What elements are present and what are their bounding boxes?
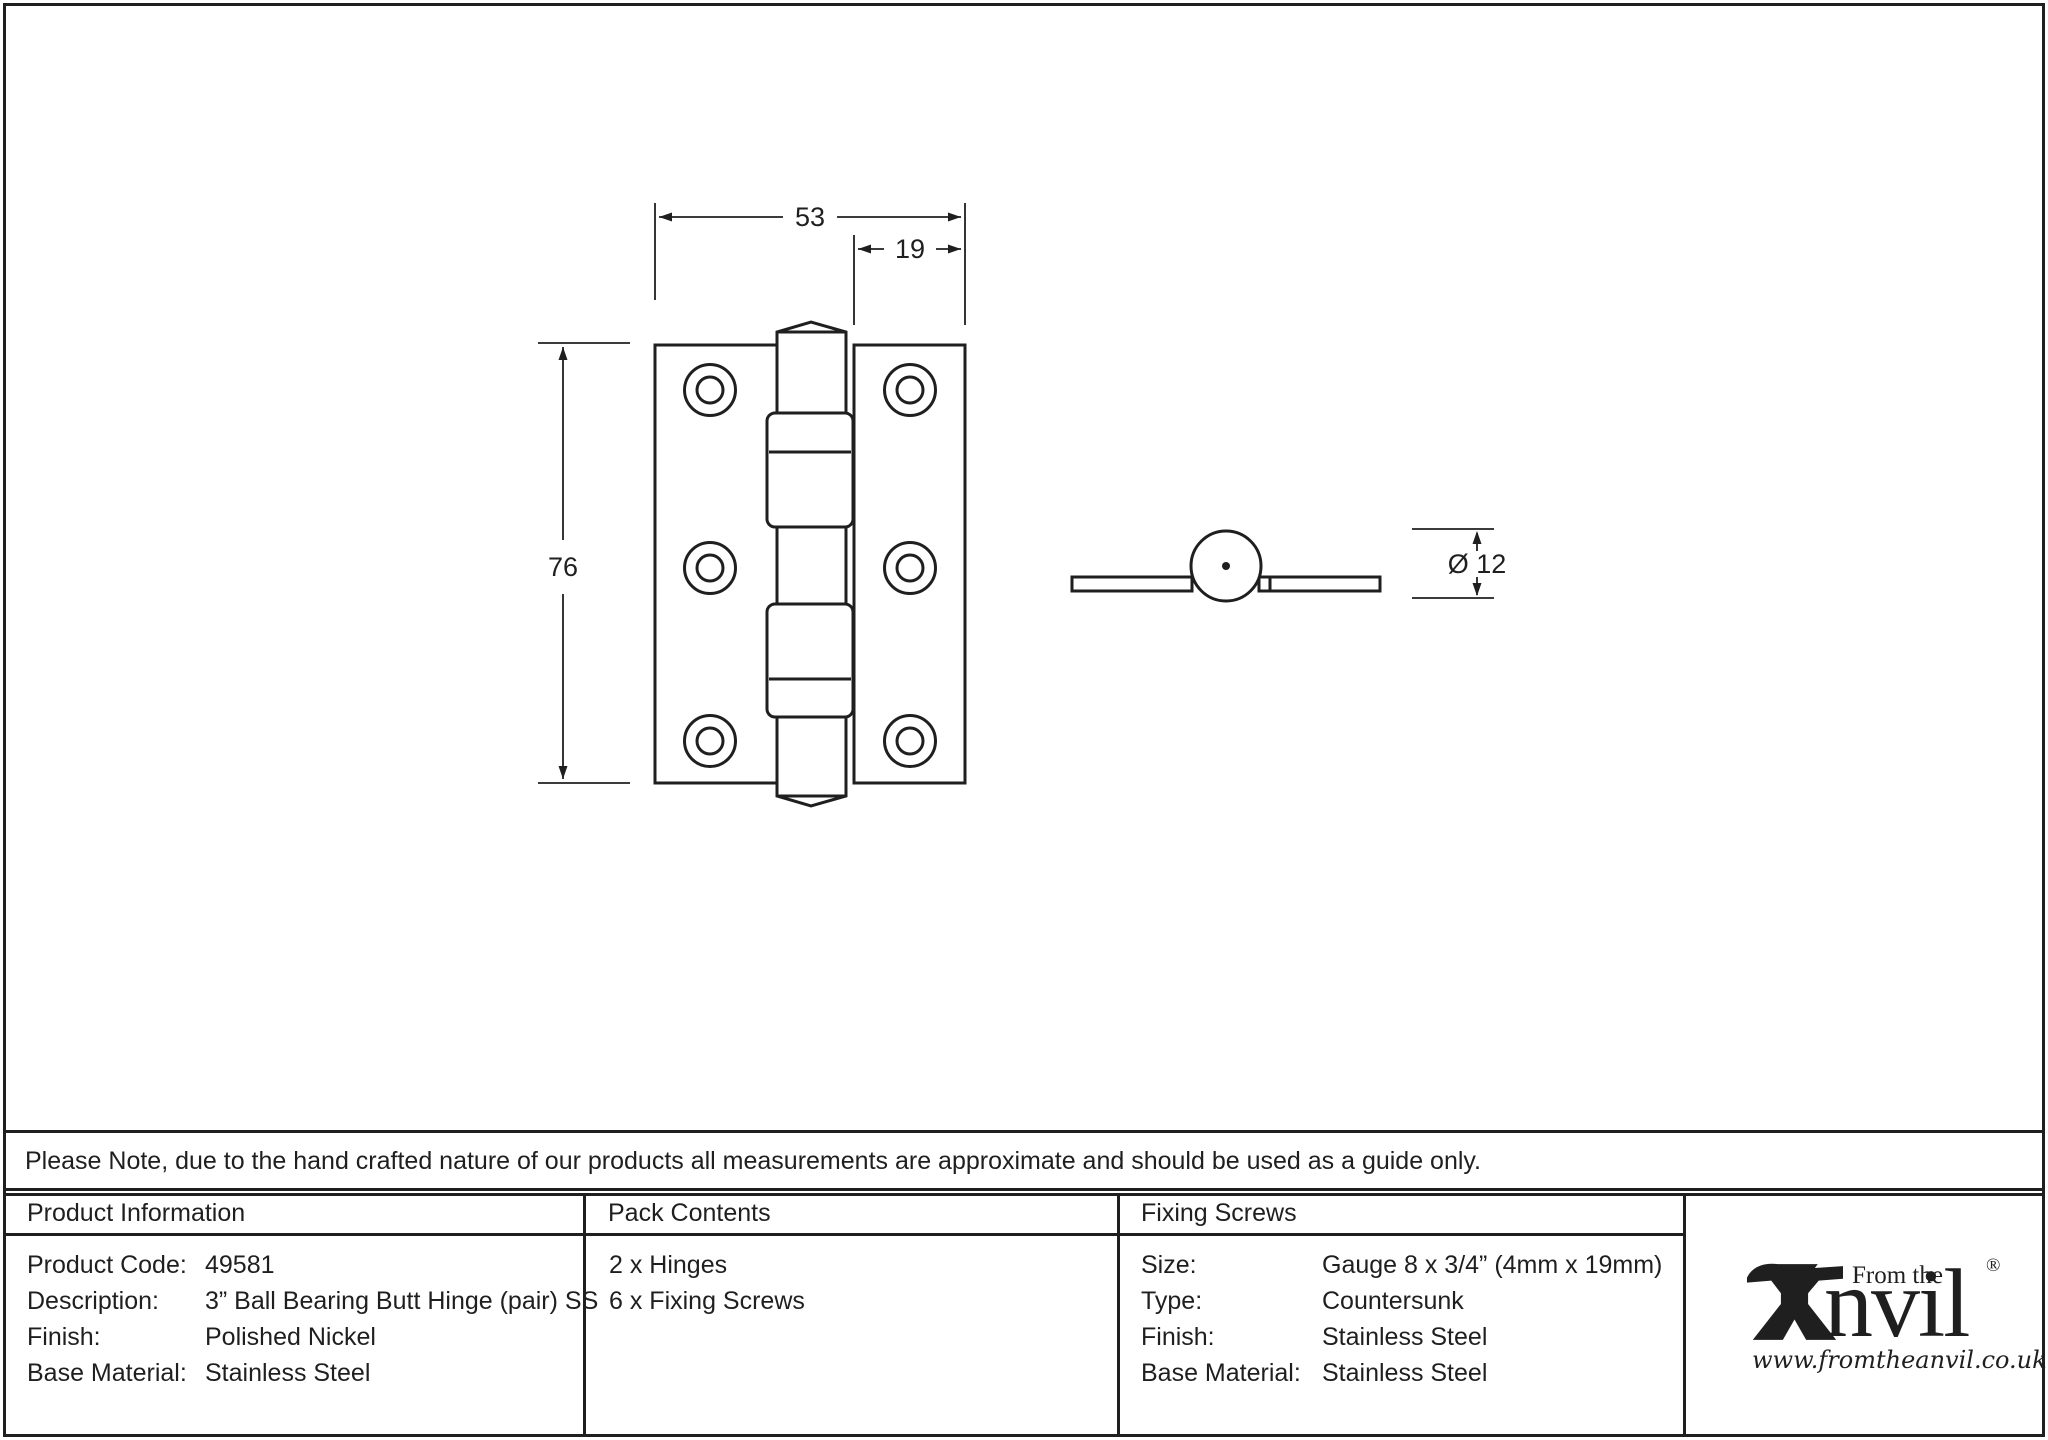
row-label: Base Material: bbox=[27, 1358, 187, 1388]
table-divider bbox=[1117, 1193, 1120, 1437]
arrow-up-icon bbox=[1473, 531, 1482, 544]
logo-url: www.fromtheanvil.co.uk bbox=[1752, 1346, 2047, 1374]
pin-center-dot bbox=[1222, 562, 1230, 570]
header-product-information: Product Information bbox=[27, 1198, 245, 1228]
arrow-right-icon bbox=[948, 245, 961, 254]
arrow-up-icon bbox=[559, 347, 568, 360]
arrow-right-icon bbox=[948, 213, 961, 222]
hinge-technical-drawing: 53 19 76 Ø 12 bbox=[0, 0, 2048, 1130]
dim-label-19: 19 bbox=[895, 234, 925, 264]
side-right-leaf bbox=[1259, 577, 1380, 591]
knuckle-band-lower bbox=[767, 604, 853, 717]
row-value: Stainless Steel bbox=[1322, 1322, 1487, 1352]
row-value: 49581 bbox=[205, 1250, 275, 1280]
arrow-left-icon bbox=[659, 213, 672, 222]
row-value: Countersunk bbox=[1322, 1286, 1464, 1316]
hinge-right-leaf bbox=[854, 345, 965, 783]
row-value: Polished Nickel bbox=[205, 1322, 376, 1352]
dim-label-76: 76 bbox=[548, 552, 578, 582]
hinge-side-view bbox=[1072, 531, 1380, 601]
logo-brand-text: nvil bbox=[1824, 1255, 1968, 1353]
row-label: Finish: bbox=[27, 1322, 101, 1352]
row-label: Finish: bbox=[1141, 1322, 1215, 1352]
row-label: Type: bbox=[1141, 1286, 1202, 1316]
knuckle-band-upper bbox=[767, 413, 853, 527]
measurement-note: Please Note, due to the hand crafted nat… bbox=[25, 1146, 1481, 1176]
side-left-leaf bbox=[1072, 577, 1192, 591]
header-pack-contents: Pack Contents bbox=[608, 1198, 771, 1228]
row-value: Stainless Steel bbox=[205, 1358, 370, 1388]
arrow-left-icon bbox=[858, 245, 871, 254]
hinge-bottom-cap bbox=[777, 783, 846, 806]
row-label: Size: bbox=[1141, 1250, 1197, 1280]
arrow-down-icon bbox=[559, 766, 568, 779]
dim-label-53: 53 bbox=[795, 202, 825, 232]
row-label: Base Material: bbox=[1141, 1358, 1301, 1388]
row-value: Stainless Steel bbox=[1322, 1358, 1487, 1388]
row-label: Product Code: bbox=[27, 1250, 187, 1280]
pack-item: 6 x Fixing Screws bbox=[609, 1286, 805, 1316]
dim-label-diameter: Ø 12 bbox=[1448, 549, 1507, 579]
arrow-down-icon bbox=[1473, 583, 1482, 596]
row-value: 3” Ball Bearing Butt Hinge (pair) SS bbox=[205, 1286, 598, 1316]
row-label: Description: bbox=[27, 1286, 159, 1316]
hinge-top-cap bbox=[777, 322, 846, 345]
pack-item: 2 x Hinges bbox=[609, 1250, 727, 1280]
registered-trademark-icon: ® bbox=[1986, 1256, 2000, 1276]
table-header-underline bbox=[3, 1233, 1686, 1236]
header-fixing-screws: Fixing Screws bbox=[1141, 1198, 1297, 1228]
row-value: Gauge 8 x 3/4” (4mm x 19mm) bbox=[1322, 1250, 1662, 1280]
hinge-front-view bbox=[655, 322, 965, 806]
